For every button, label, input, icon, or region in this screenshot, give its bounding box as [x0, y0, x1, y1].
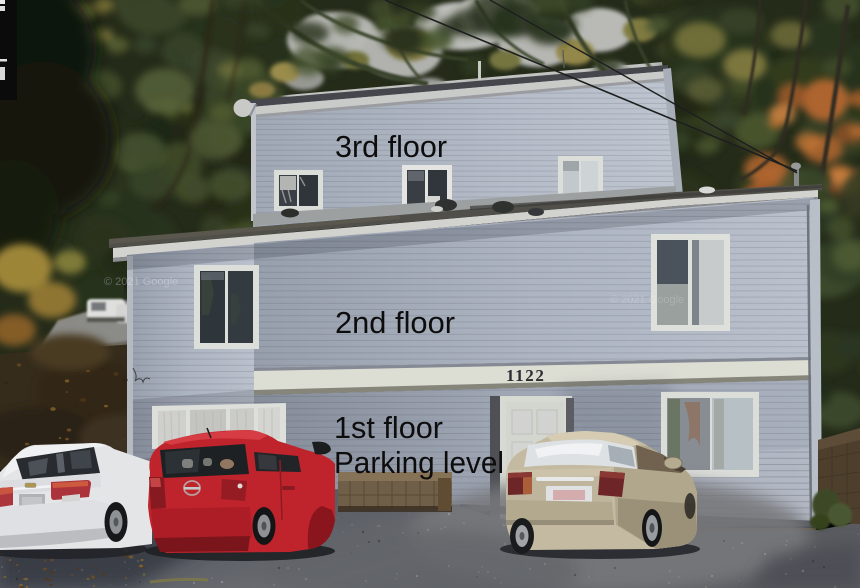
svg-text:© 2021 Google: © 2021 Google	[104, 276, 178, 288]
svg-text:© 2021 Google: © 2021 Google	[610, 294, 684, 306]
svg-text:3rd floor: 3rd floor	[335, 129, 447, 164]
svg-text:1122: 1122	[506, 366, 545, 385]
svg-text:2nd floor: 2nd floor	[335, 305, 455, 340]
svg-text:1st floor: 1st floor	[334, 410, 443, 445]
svg-text:Parking level: Parking level	[334, 445, 504, 480]
